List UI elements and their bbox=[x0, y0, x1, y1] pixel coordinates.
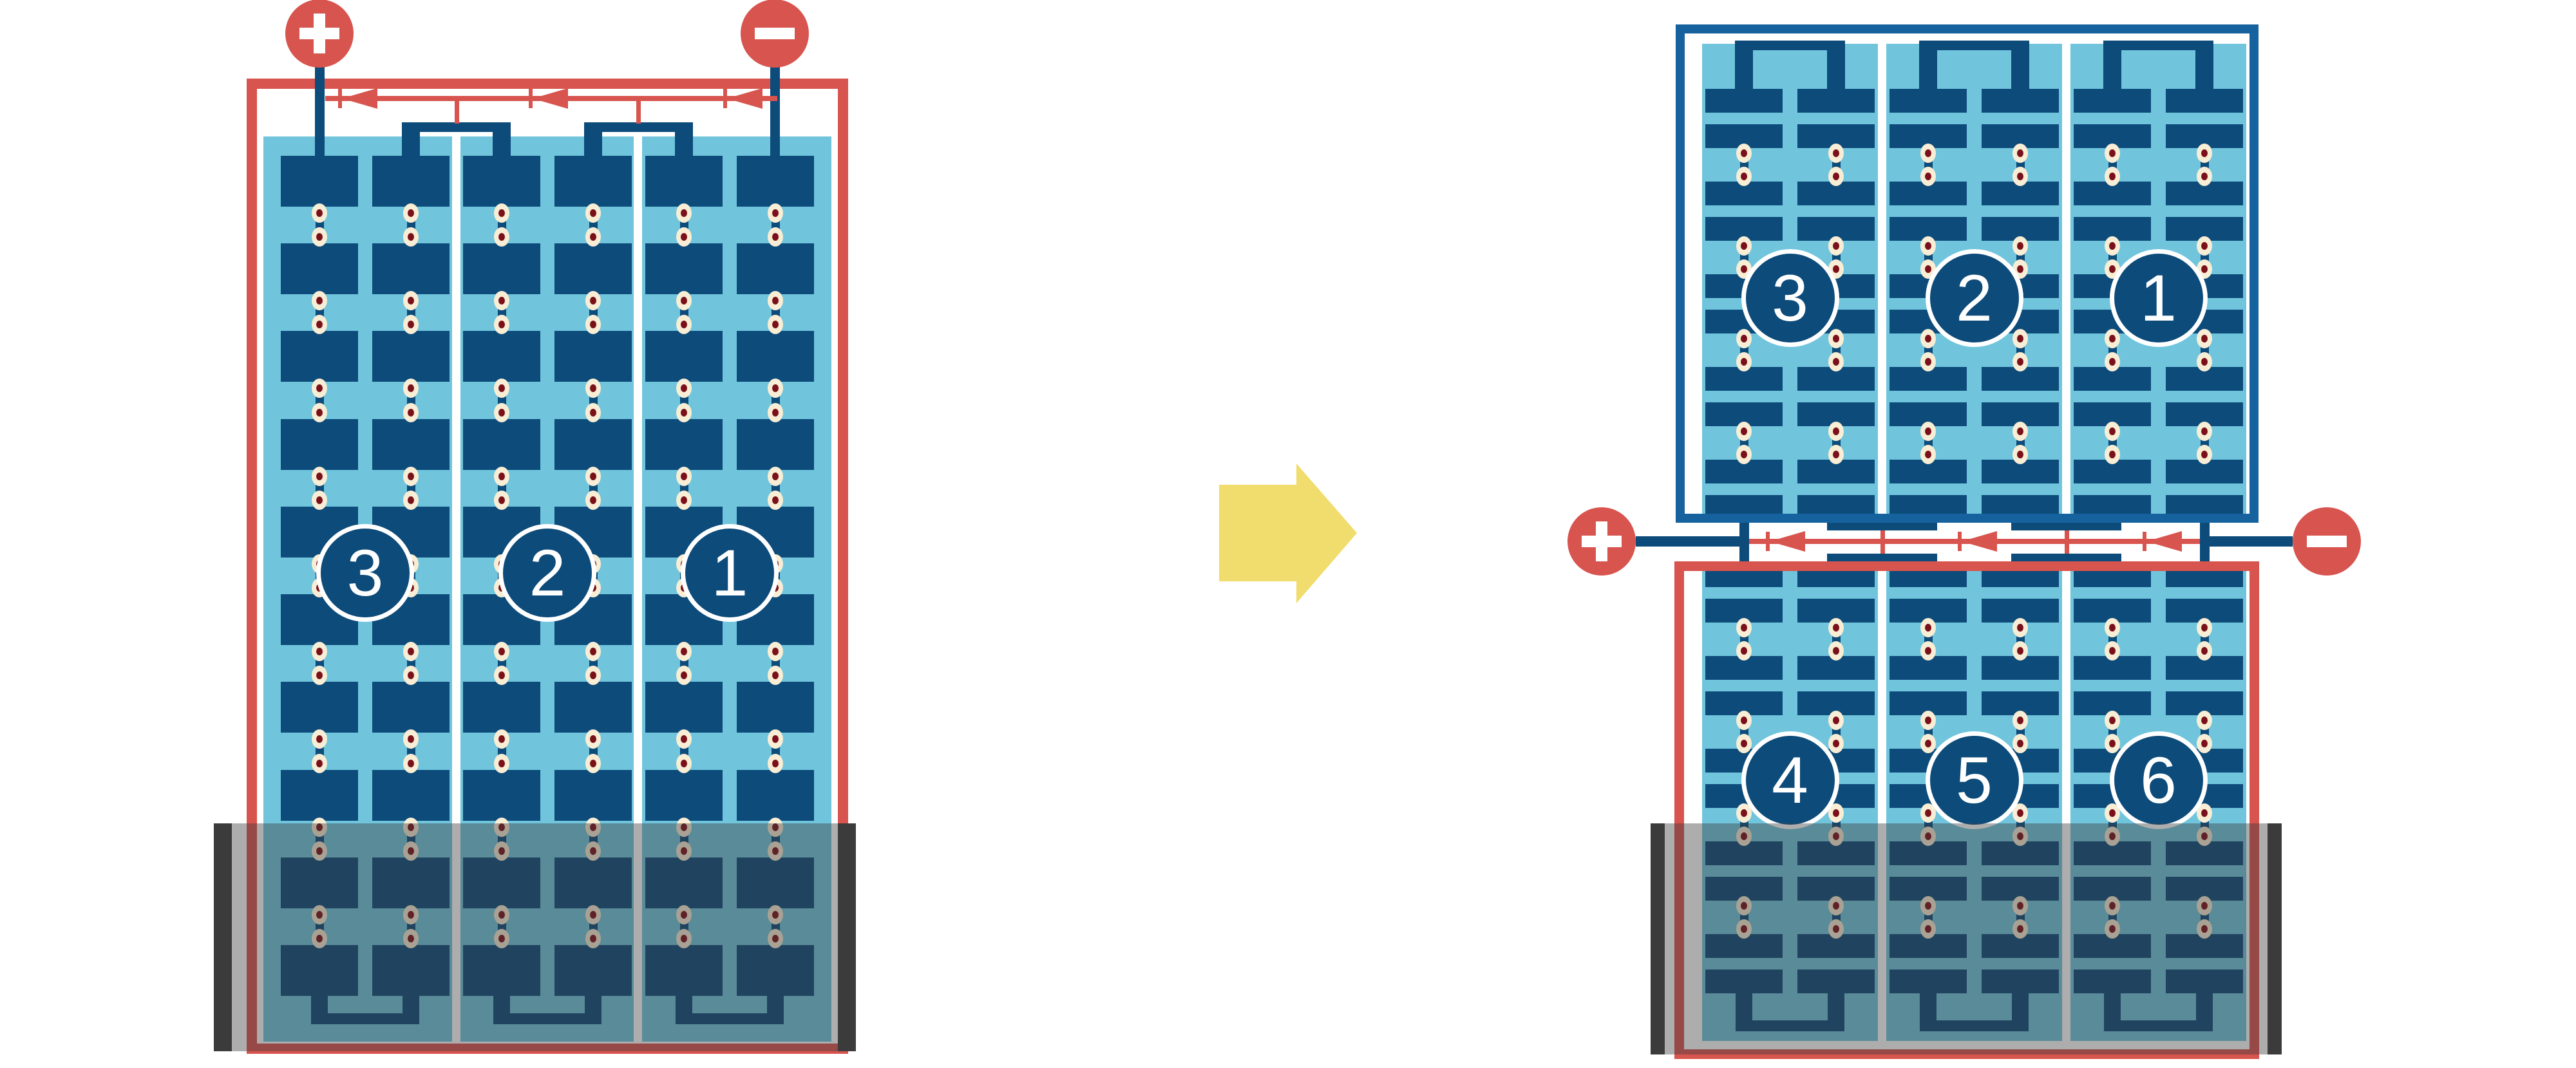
solar-cell bbox=[463, 243, 540, 294]
solder-dot bbox=[2012, 167, 2028, 186]
solder-dot bbox=[312, 491, 327, 510]
solder-dot bbox=[768, 467, 783, 486]
solder-dot bbox=[768, 491, 783, 510]
solder-dot bbox=[2012, 711, 2028, 730]
solar-cell bbox=[372, 331, 450, 382]
substring-label: 1 bbox=[2110, 249, 2208, 347]
diode-triangle-icon bbox=[1962, 531, 1997, 552]
solar-cell bbox=[372, 682, 450, 733]
solder-dot bbox=[585, 754, 601, 773]
terminal-lead-wire bbox=[315, 61, 325, 156]
solder-dot bbox=[1828, 167, 1844, 186]
solder-dot bbox=[403, 666, 419, 685]
solar-cell bbox=[2166, 89, 2243, 113]
solder-dot bbox=[312, 467, 327, 486]
solder-dot bbox=[312, 291, 327, 310]
solder-dot bbox=[1828, 352, 1844, 371]
solder-dot bbox=[1736, 144, 1752, 163]
solder-dot bbox=[2105, 236, 2120, 256]
solder-dot bbox=[1828, 144, 1844, 163]
solder-dot bbox=[2012, 329, 2028, 348]
solar-cell bbox=[645, 682, 723, 733]
solder-dot bbox=[676, 467, 692, 486]
solar-cell bbox=[737, 156, 814, 207]
solder-dot bbox=[2105, 734, 2120, 753]
solder-dot bbox=[585, 467, 601, 486]
solder-dot bbox=[2197, 422, 2212, 441]
solder-dot bbox=[585, 642, 601, 661]
minus-icon bbox=[741, 0, 809, 68]
solder-dot bbox=[768, 754, 783, 773]
solar-cell bbox=[372, 243, 450, 294]
busbar-leg bbox=[675, 122, 693, 156]
solder-dot bbox=[768, 403, 783, 422]
solder-dot bbox=[1828, 734, 1844, 753]
solder-dot bbox=[1920, 144, 1936, 163]
solar-cell bbox=[281, 331, 358, 382]
solder-dot bbox=[403, 315, 419, 334]
solder-dot bbox=[2012, 236, 2028, 256]
solder-dot bbox=[1920, 236, 1936, 256]
module-link-tab bbox=[1827, 554, 1937, 561]
module-link-tab bbox=[2011, 523, 2121, 530]
solder-dot bbox=[768, 291, 783, 310]
solder-dot bbox=[768, 666, 783, 685]
solder-dot bbox=[676, 227, 692, 247]
shade-bar-right-end bbox=[2268, 823, 2282, 1054]
solder-dot bbox=[403, 403, 419, 422]
solder-dot bbox=[403, 467, 419, 486]
solder-dot bbox=[2197, 734, 2212, 753]
busbar-leg bbox=[2011, 41, 2029, 89]
solder-dot bbox=[2105, 711, 2120, 730]
solder-dot bbox=[2197, 711, 2212, 730]
solder-dot bbox=[2012, 641, 2028, 660]
solder-dot bbox=[768, 729, 783, 749]
solder-dot bbox=[1920, 641, 1936, 660]
solder-dot bbox=[1828, 236, 1844, 256]
busbar-leg bbox=[1919, 41, 1937, 89]
solder-dot bbox=[768, 642, 783, 661]
solar-cell bbox=[463, 682, 540, 733]
substring-label: 5 bbox=[1926, 731, 2023, 829]
module-link-tab bbox=[2011, 554, 2121, 561]
solder-dot bbox=[1736, 618, 1752, 637]
solder-dot bbox=[2105, 352, 2120, 371]
terminal-lead-wire bbox=[2210, 536, 2293, 547]
solar-cell bbox=[737, 243, 814, 294]
solder-dot bbox=[1736, 734, 1752, 753]
solar-cell bbox=[2166, 495, 2243, 514]
solder-dot bbox=[312, 642, 327, 661]
diode-triangle-icon bbox=[533, 88, 568, 109]
solder-dot bbox=[585, 227, 601, 247]
solar-cell bbox=[281, 243, 358, 294]
solar-cell bbox=[1797, 89, 1875, 113]
diagram-canvas: 321 321 456 bbox=[0, 0, 2576, 1068]
solar-cell bbox=[1982, 495, 2059, 514]
solar-cell bbox=[281, 682, 358, 733]
shade-bar-right-end bbox=[838, 823, 856, 1051]
solder-dot bbox=[1920, 422, 1936, 441]
solder-dot bbox=[403, 729, 419, 749]
solder-dot bbox=[1828, 711, 1844, 730]
solder-dot bbox=[2105, 445, 2120, 464]
solder-dot bbox=[1736, 641, 1752, 660]
busbar-leg bbox=[493, 122, 511, 156]
solar-cell bbox=[463, 419, 540, 470]
solder-dot bbox=[585, 315, 601, 334]
solar-cell bbox=[281, 419, 358, 470]
solder-dot bbox=[2197, 329, 2212, 348]
solder-dot bbox=[585, 666, 601, 685]
solder-dot bbox=[1736, 711, 1752, 730]
solder-dot bbox=[2197, 236, 2212, 256]
solar-cell bbox=[554, 682, 632, 733]
solar-cell bbox=[1705, 495, 1783, 514]
diode-junction-stub bbox=[636, 101, 641, 124]
solar-cell bbox=[1705, 89, 1783, 113]
solar-cell bbox=[2074, 495, 2151, 514]
busbar-leg bbox=[2103, 41, 2121, 89]
busbar-leg bbox=[584, 122, 602, 156]
solder-dot bbox=[1736, 236, 1752, 256]
solar-cell bbox=[554, 243, 632, 294]
solder-dot bbox=[1920, 167, 1936, 186]
junction-bar bbox=[1739, 523, 1749, 561]
busbar-leg bbox=[1735, 41, 1753, 89]
solder-dot bbox=[1920, 618, 1936, 637]
busbar-leg bbox=[1827, 41, 1845, 89]
solar-cell bbox=[737, 331, 814, 382]
solar-cell bbox=[554, 770, 632, 821]
solder-dot bbox=[494, 227, 509, 247]
solder-dot bbox=[676, 491, 692, 510]
solder-dot bbox=[312, 315, 327, 334]
solar-cell bbox=[1982, 571, 2059, 587]
solder-dot bbox=[2012, 144, 2028, 163]
junction-bar bbox=[2200, 523, 2210, 561]
busbar-leg bbox=[2195, 41, 2213, 89]
solder-dot bbox=[494, 403, 509, 422]
solder-dot bbox=[494, 642, 509, 661]
solder-dot bbox=[1920, 711, 1936, 730]
solder-dot bbox=[2012, 618, 2028, 637]
solar-cell bbox=[737, 682, 814, 733]
solar-cell bbox=[645, 331, 723, 382]
solder-dot bbox=[768, 203, 783, 223]
solder-dot bbox=[768, 227, 783, 247]
solder-dot bbox=[2012, 734, 2028, 753]
solder-dot bbox=[312, 666, 327, 685]
solder-dot bbox=[2197, 618, 2212, 637]
solder-dot bbox=[494, 729, 509, 749]
substring-label: 3 bbox=[316, 524, 414, 622]
solder-dot bbox=[676, 379, 692, 398]
solder-dot bbox=[1736, 167, 1752, 186]
solder-dot bbox=[312, 754, 327, 773]
diode-junction-stub bbox=[455, 101, 459, 124]
solar-cell bbox=[737, 770, 814, 821]
solder-dot bbox=[494, 315, 509, 334]
solder-dot bbox=[676, 729, 692, 749]
diode-junction-stub bbox=[2065, 530, 2069, 554]
solder-dot bbox=[585, 291, 601, 310]
solder-dot bbox=[676, 403, 692, 422]
solder-dot bbox=[2012, 352, 2028, 371]
solar-cell bbox=[1797, 495, 1875, 514]
solar-cell bbox=[554, 419, 632, 470]
solder-dot bbox=[768, 315, 783, 334]
substring-label: 1 bbox=[681, 524, 779, 622]
right-shade-overlay bbox=[1651, 823, 2282, 1054]
shade-bar-left-end bbox=[1651, 823, 1665, 1054]
solar-cell bbox=[1889, 571, 1967, 587]
solder-dot bbox=[403, 754, 419, 773]
solder-dot bbox=[494, 467, 509, 486]
solder-dot bbox=[768, 379, 783, 398]
solder-dot bbox=[1828, 422, 1844, 441]
diode-triangle-icon bbox=[342, 88, 377, 109]
solder-dot bbox=[312, 379, 327, 398]
solder-dot bbox=[2197, 352, 2212, 371]
solder-dot bbox=[403, 491, 419, 510]
solar-cell bbox=[554, 331, 632, 382]
solder-dot bbox=[1736, 329, 1752, 348]
solar-cell bbox=[281, 156, 358, 207]
solder-dot bbox=[1828, 445, 1844, 464]
solder-dot bbox=[403, 291, 419, 310]
solar-cell bbox=[372, 156, 450, 207]
busbar-leg bbox=[402, 122, 420, 156]
solder-dot bbox=[1920, 734, 1936, 753]
solder-dot bbox=[676, 754, 692, 773]
solder-dot bbox=[312, 227, 327, 247]
shade-bar-left-end bbox=[214, 823, 232, 1051]
solder-dot bbox=[2105, 329, 2120, 348]
substring-label: 6 bbox=[2110, 731, 2208, 829]
solder-dot bbox=[403, 642, 419, 661]
solar-cell bbox=[372, 419, 450, 470]
solar-cell bbox=[645, 419, 723, 470]
substring-gap bbox=[1878, 44, 1886, 514]
solder-dot bbox=[2105, 422, 2120, 441]
solder-dot bbox=[494, 754, 509, 773]
solar-cell bbox=[645, 156, 723, 207]
solder-dot bbox=[2012, 422, 2028, 441]
solder-dot bbox=[312, 203, 327, 223]
terminal-lead-wire bbox=[770, 61, 780, 156]
minus-icon bbox=[2293, 507, 2361, 576]
solar-cell bbox=[1705, 571, 1783, 587]
solder-dot bbox=[2197, 144, 2212, 163]
solder-dot bbox=[1736, 445, 1752, 464]
plus-icon bbox=[1567, 507, 1636, 576]
solder-dot bbox=[2105, 144, 2120, 163]
solar-cell bbox=[372, 770, 450, 821]
solder-dot bbox=[1828, 618, 1844, 637]
solder-dot bbox=[585, 203, 601, 223]
solder-dot bbox=[1736, 422, 1752, 441]
solar-cell bbox=[1889, 495, 1967, 514]
solder-dot bbox=[494, 291, 509, 310]
plus-icon bbox=[285, 0, 354, 68]
solder-dot bbox=[2105, 641, 2120, 660]
solder-dot bbox=[585, 491, 601, 510]
solder-dot bbox=[494, 379, 509, 398]
solder-dot bbox=[1920, 352, 1936, 371]
substring-label: 4 bbox=[1741, 731, 1839, 829]
substring-label: 2 bbox=[1926, 249, 2023, 347]
solar-cell bbox=[281, 770, 358, 821]
solder-dot bbox=[312, 403, 327, 422]
diode-junction-stub bbox=[1880, 530, 1885, 554]
solder-dot bbox=[676, 291, 692, 310]
solder-dot bbox=[494, 203, 509, 223]
solder-dot bbox=[585, 729, 601, 749]
solder-dot bbox=[1736, 352, 1752, 371]
left-shade-overlay bbox=[214, 823, 856, 1051]
solar-cell bbox=[2074, 571, 2151, 587]
solar-cell bbox=[554, 156, 632, 207]
diode-triangle-icon bbox=[727, 88, 762, 109]
solder-dot bbox=[403, 379, 419, 398]
diode-triangle-icon bbox=[1770, 531, 1805, 552]
solder-dot bbox=[585, 403, 601, 422]
solar-cell bbox=[463, 156, 540, 207]
solar-cell bbox=[2166, 571, 2243, 587]
solder-dot bbox=[494, 666, 509, 685]
solder-dot bbox=[676, 666, 692, 685]
module-link-tab bbox=[1827, 523, 1937, 530]
solder-dot bbox=[1920, 445, 1936, 464]
solar-cell bbox=[463, 770, 540, 821]
solder-dot bbox=[2105, 618, 2120, 637]
solar-cell bbox=[645, 770, 723, 821]
substring-gap bbox=[2062, 44, 2070, 514]
solder-dot bbox=[676, 315, 692, 334]
solder-dot bbox=[1828, 641, 1844, 660]
solar-cell bbox=[1797, 571, 1875, 587]
solder-dot bbox=[2197, 167, 2212, 186]
solder-dot bbox=[403, 203, 419, 223]
solder-dot bbox=[676, 642, 692, 661]
solder-dot bbox=[1920, 329, 1936, 348]
solar-cell bbox=[1982, 89, 2059, 113]
solar-cell bbox=[645, 243, 723, 294]
substring-label: 3 bbox=[1741, 249, 1839, 347]
solder-dot bbox=[2197, 445, 2212, 464]
right-top-module-panel: 321 bbox=[1702, 44, 2246, 514]
solder-dot bbox=[494, 491, 509, 510]
solder-dot bbox=[2105, 167, 2120, 186]
solar-cell bbox=[2074, 89, 2151, 113]
solar-cell bbox=[737, 419, 814, 470]
solder-dot bbox=[2012, 445, 2028, 464]
solder-dot bbox=[676, 203, 692, 223]
substring-label: 2 bbox=[498, 524, 596, 622]
terminal-lead-wire bbox=[1636, 536, 1739, 547]
solar-cell bbox=[1889, 89, 1967, 113]
solar-cell bbox=[463, 331, 540, 382]
solder-dot bbox=[312, 729, 327, 749]
solder-dot bbox=[585, 379, 601, 398]
solder-dot bbox=[403, 227, 419, 247]
solder-dot bbox=[2197, 641, 2212, 660]
solder-dot bbox=[1828, 329, 1844, 348]
diode-triangle-icon bbox=[2146, 531, 2182, 552]
